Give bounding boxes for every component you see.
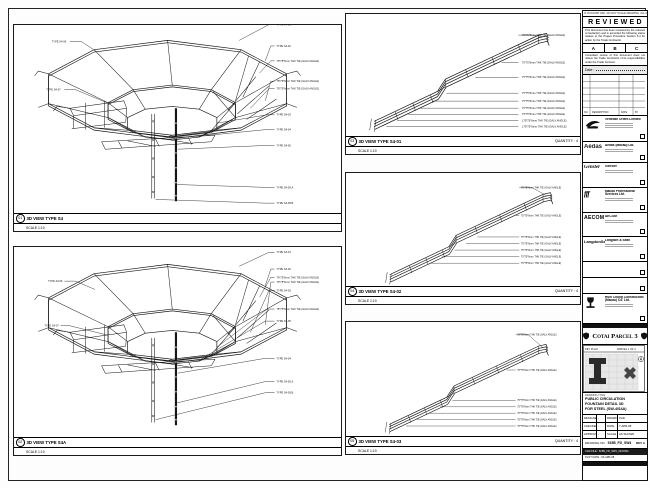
view-title: 3D VIEW TYPE S4-01 <box>359 139 402 144</box>
callout-label: TYPE S4-04 <box>276 356 291 360</box>
callout-label: TYPE S4-05.A <box>276 380 293 384</box>
aedas-logo: Aedas <box>584 144 602 150</box>
date-fill-line <box>596 70 645 71</box>
stamp-status-a: A <box>583 44 605 52</box>
consultant-address-lines <box>605 198 646 201</box>
callout-label: 75*75*6mm THK TIE (GALV ANGLE) <box>522 33 565 37</box>
consultant-name: Gensler <box>605 165 646 169</box>
view-scale: SCALE 1:10 <box>346 297 580 305</box>
info-table: DESIGNED - DRAWN CAD CHECKED - DATE 7-AP… <box>583 415 647 439</box>
stamp-status-b: B <box>605 44 627 52</box>
info-cell: - <box>597 415 606 422</box>
view-title: 3D VIEW TYPE S4-02 <box>359 289 402 294</box>
callout-label: TYPE S4-06 <box>48 279 63 283</box>
consultant-row-empty <box>583 262 647 278</box>
consultant-checkbox <box>640 134 646 140</box>
callout-label: 75*75*6mm THK TIE (GALV ANGLE) <box>521 262 562 265</box>
date-label: Date : <box>585 68 594 72</box>
key-plan-label: KEY PLAN <box>585 347 598 351</box>
view-scale: SCALE 1:10 <box>346 147 580 155</box>
consultant-row-langdon-seah: LangdonSeah Langdon & Seah <box>583 237 647 262</box>
stamp-title: REVIEWED <box>583 17 647 28</box>
rev-col-date: DATE <box>621 111 628 114</box>
crest-icon <box>583 331 589 341</box>
view-number-bubble: 03 <box>348 137 357 146</box>
callout-label: 75*75*6mm THK TIE (GALV ANGLE) <box>517 334 557 337</box>
callout-label: 75*75*6mm THK TIE (GALV ANGLE) <box>517 425 557 428</box>
revision-grid: NO. DESCRIPTION DATE BY <box>583 75 645 115</box>
consultant-checkbox <box>640 229 646 235</box>
callout-label: TYPE S4-02 <box>276 267 291 271</box>
callout-label: 75*75*6mm THK TIE (GALV ANGLE) <box>276 307 319 311</box>
view-quantity: QUANTITY : 4 <box>555 439 578 443</box>
callout-label: TYPE S4-04 <box>276 128 291 132</box>
project-banner: Cotai Parcel 3 <box>583 328 647 345</box>
view-title: 3D VIEW TYPE S4A <box>27 440 67 445</box>
callout-label: 75*75*6mm THK TIE (GALV ANGLE) <box>276 280 319 284</box>
review-stamp: REVIEWED This document has been reviewed… <box>583 17 647 66</box>
info-cell: 7-APR-08 <box>618 422 647 430</box>
callout-label: TYPE S4-05.B <box>276 391 293 395</box>
view-title: 3D VIEW TYPE S4 <box>27 216 64 221</box>
drawing-title-block: DRAWING TITLE PUBLIC CIRCULATION FOUNTAI… <box>583 393 647 414</box>
key-plan: KEY PLAN PARCEL 1 OF 3 <box>583 345 647 393</box>
drawing-number-label: DRAWING NO. <box>585 441 606 445</box>
consultant-row-aedas: Aedas Aedas (Macau) Ltd. <box>583 142 647 163</box>
callout-label: 75*75*6mm THK TIE (GALV ANGLE) <box>521 255 562 258</box>
plot-date-row: PLOT DATE : 04-APR-08 <box>583 455 647 462</box>
info-cell: - <box>597 430 606 438</box>
callout-label: TYPE S4-06 <box>52 39 67 43</box>
consultant-checkbox <box>640 205 646 211</box>
consultant-row-aecom: AECOM AECOM <box>583 213 647 237</box>
drawing-number-value: 515B_FD_SW4 <box>608 441 632 445</box>
consultant-checkbox <box>640 254 646 260</box>
callout-label: L75*75*6mm THK TIE (GALV ANGLE) <box>522 118 567 122</box>
callout-label: TYPE S4-02 <box>276 44 291 48</box>
viewport-3d-view-type-s4-01: 75*75*6mm THK TIE (GALV ANGLE) 75*75*6mm… <box>345 13 581 155</box>
callout-label: 75*75*6mm THK TIE (GALV ANGLE) <box>517 412 557 415</box>
crest-icon <box>641 331 647 341</box>
consultant-row-mps: fff Macau Professional Services Ltd. <box>583 188 647 213</box>
view-title-strip: 05 3D VIEW TYPE S4-03 QUANTITY : 4 <box>346 436 580 447</box>
view-number-bubble: 05 <box>348 437 357 446</box>
contractor-row: Hsin Chong Construction (Macau) Co. Ltd. <box>583 294 647 324</box>
consultant-address-lines <box>605 123 646 128</box>
callout-label: 75*75*6mm THK TIE (GALV ANGLE) <box>276 87 319 91</box>
stamp-date-row: Date : <box>583 66 647 75</box>
callout-label: 75*75*6mm THK TIE (GALV ANGLE) <box>522 91 565 95</box>
contractor-address-lines <box>605 304 646 307</box>
callout-label: 75*75*6mm THK TIE (GALV ANGLE) <box>276 79 319 83</box>
aecom-logo: AECOM <box>584 215 604 221</box>
callout-label: 75*75*6mm THK TIE (GALV ANGLE) <box>522 106 565 110</box>
callout-label: 75*75*6mm THK TIE (GALV ANGLE) <box>521 242 562 245</box>
consultant-row-empty <box>583 278 647 294</box>
view-quantity: QUANTITY : 4 <box>555 289 578 293</box>
drawing-sheet: { "sheet": { "note": "IF IN DOUBT ASK. D… <box>0 0 650 488</box>
mps-logo: fff <box>584 190 589 198</box>
callout-label: TYPE S4-07 <box>44 324 59 328</box>
umbrella-structure-drawing: TYPE S4-01 TYPE S4-02 75*75*6mm THK TIE … <box>14 247 341 437</box>
venetian-logo <box>584 118 605 130</box>
consultant-name: Aedas (Macau) Ltd. <box>605 144 646 148</box>
view-scale: SCALE 1:10 <box>14 448 341 456</box>
info-cell: DRAWN <box>606 415 618 422</box>
view-number-bubble: 01 <box>16 214 25 223</box>
consultant-row-venetian: Venetian Orient Limited <box>583 116 647 142</box>
project-title: Cotai Parcel 3 <box>592 333 637 340</box>
stamp-body-2: Consultant review of this document does … <box>583 53 647 65</box>
info-cell: DESIGNED <box>583 415 597 422</box>
footer-bar <box>583 462 647 466</box>
info-cell: DATE <box>606 422 618 430</box>
consultant-checkbox <box>640 155 646 161</box>
consultant-name: Langdon & Seah <box>605 239 646 243</box>
consultant-address-lines <box>605 220 646 223</box>
consultant-row-gensler: Gensler Gensler <box>583 163 647 188</box>
stamp-status-c: C <box>626 44 647 52</box>
callout-label: TYPE S4-03 <box>276 288 291 292</box>
view-quantity: QUANTITY : 4 <box>555 139 578 143</box>
info-cell: APPROVED <box>583 430 597 438</box>
revision-table: NO. DESCRIPTION DATE BY <box>583 75 647 116</box>
view-number-bubble: 02 <box>16 438 25 447</box>
brace-detail-drawing: 75*75*6mm THK TIE (GALV ANGLE) 75*75*6mm… <box>346 14 580 136</box>
key-plan-drawing: KEY PLAN PARCEL 1 OF 3 <box>583 345 645 392</box>
callout-label: 75*75*6mm THK TIE (GALV ANGLE) <box>521 214 562 217</box>
view-number-bubble: 04 <box>348 287 357 296</box>
key-plan-parcel-label: PARCEL 1 OF 3 <box>617 347 636 351</box>
view-title: 3D VIEW TYPE S4-03 <box>359 439 402 444</box>
callout-label: TYPE S4-05.B <box>276 201 293 205</box>
view-scale: SCALE 1:10 <box>14 224 341 232</box>
brace-detail-drawing: 75*75*6mm THK TIE (GALV ANGLE) 75*75*6mm… <box>346 173 580 286</box>
consultant-address-lines <box>605 170 646 173</box>
callout-label: 75*75*6mm THK TIE (GALV ANGLE) <box>276 275 319 279</box>
rev-col-no: NO. <box>584 111 589 114</box>
consultant-address-lines <box>605 149 646 152</box>
view-title-strip: 03 3D VIEW TYPE S4-01 QUANTITY : 4 <box>346 136 580 147</box>
brace-detail-drawing: 75*75*6mm THK TIE (GALV ANGLE) 75*75*6mm… <box>346 322 580 436</box>
callout-label: TYPE S4-05 <box>276 319 291 323</box>
info-cell: - <box>597 422 606 430</box>
view-title-strip: 04 3D VIEW TYPE S4-02 QUANTITY : 4 <box>346 286 580 297</box>
gensler-logo: Gensler <box>584 165 600 170</box>
rev-col-desc: DESCRIPTION <box>592 111 609 114</box>
stamp-body-1: This document has been reviewed by the r… <box>583 28 647 44</box>
umbrella-structure-drawing: TYPE S4-01 TYPE S4-02 75*75*6mm THK TIE … <box>14 25 341 213</box>
info-cell: CAD <box>618 415 647 422</box>
stamp-status-columns: A B C <box>583 43 647 53</box>
rev-col-by: BY <box>635 111 639 114</box>
contractor-logo <box>584 296 605 310</box>
consultant-checkbox <box>640 270 646 276</box>
info-cell: CHECKED <box>583 422 597 430</box>
callout-label: TYPE S4-05.A <box>276 185 293 189</box>
consultant-address-lines <box>605 244 646 247</box>
umbrella-frame-geometry <box>35 40 301 201</box>
viewport-3d-view-type-s4-03: 75*75*6mm THK TIE (GALV ANGLE) 75*75*6mm… <box>345 321 581 455</box>
callout-label: 75*75*6mm THK TIE (GALV ANGLE) <box>521 187 562 190</box>
contractor-name: Hsin Chong Construction (Macau) Co. Ltd. <box>605 296 646 303</box>
langdon-seah-logo: LangdonSeah <box>584 239 605 244</box>
viewport-3d-view-type-s4-02: 75*75*6mm THK TIE (GALV ANGLE) 75*75*6mm… <box>345 172 581 305</box>
callout-label: L75*75*6mm THK TIE (GALV ANGLE) <box>522 125 567 129</box>
callout-label: 75*75*6mm THK TIE (GALV ANGLE) <box>276 59 319 63</box>
callout-label: TYPE S4-03 <box>276 113 291 117</box>
callout-label: 75*75*6mm THK TIE (GALV ANGLE) <box>522 75 565 79</box>
callout-label: 75*75*6mm THK TIE (GALV ANGLE) <box>522 99 565 103</box>
brace-member-geometry <box>370 33 550 132</box>
viewport-3d-view-type-s4: TYPE S4-01 TYPE S4-02 75*75*6mm THK TIE … <box>13 24 342 232</box>
consultant-name: AECOM <box>605 215 646 219</box>
consultant-checkbox <box>640 286 646 292</box>
consultant-checkbox <box>640 180 646 186</box>
callout-label: 75*75*6mm THK TIE (GALV ANGLE) <box>522 60 565 64</box>
callout-label: 75*75*6mm THK TIE (GALV ANGLE) <box>517 399 557 402</box>
viewport-3d-view-type-s4a: TYPE S4-01 TYPE S4-02 75*75*6mm THK TIE … <box>13 246 342 456</box>
consultant-name: Venetian Orient Limited <box>605 118 646 122</box>
view-title-strip: 01 3D VIEW TYPE S4 <box>14 213 341 224</box>
drawing-title-line: FOR STEEL (SW-4/S4A) <box>585 407 645 412</box>
consultant-name: Macau Professional Services Ltd. <box>605 190 646 197</box>
view-scale: SCALE 1:10 <box>346 447 580 455</box>
callout-label: 75*75*6mm THK TIE (GALV ANGLE) <box>517 418 557 421</box>
callout-label: 75*75*6mm THK TIE (GALV ANGLE) <box>517 369 557 372</box>
callout-leaders <box>61 252 275 419</box>
callout-label: TYPE S4-01 <box>276 250 291 254</box>
callout-label: 75*75*6mm THK TIE (GALV ANGLE) <box>521 249 562 252</box>
callout-label: TYPE S4-01 <box>276 25 291 27</box>
callout-label: TYPE S4-05 <box>276 143 291 147</box>
callout-label: 75*75*6mm THK TIE (GALV ANGLE) <box>522 112 565 116</box>
callout-label: TYPE S4-07 <box>46 88 61 92</box>
title-block: IF IN DOUBT ASK. DO NOT SCALE DRAWING. A… <box>582 10 648 481</box>
view-title-strip: 02 3D VIEW TYPE S4A <box>14 437 341 448</box>
callout-label: 75*75*6mm THK TIE (GALV ANGLE) <box>517 406 557 409</box>
revision-value: REV A <box>636 441 645 445</box>
info-cell: AS SHOWN <box>618 430 647 438</box>
contractor-checkbox <box>640 316 646 322</box>
drawing-number-row: DRAWING NO. 515B_FD_SW4 REV A <box>583 439 647 449</box>
info-cell: SCALE <box>606 430 618 438</box>
callout-label: 75*75*6mm THK TIE (GALV ANGLE) <box>521 236 562 239</box>
